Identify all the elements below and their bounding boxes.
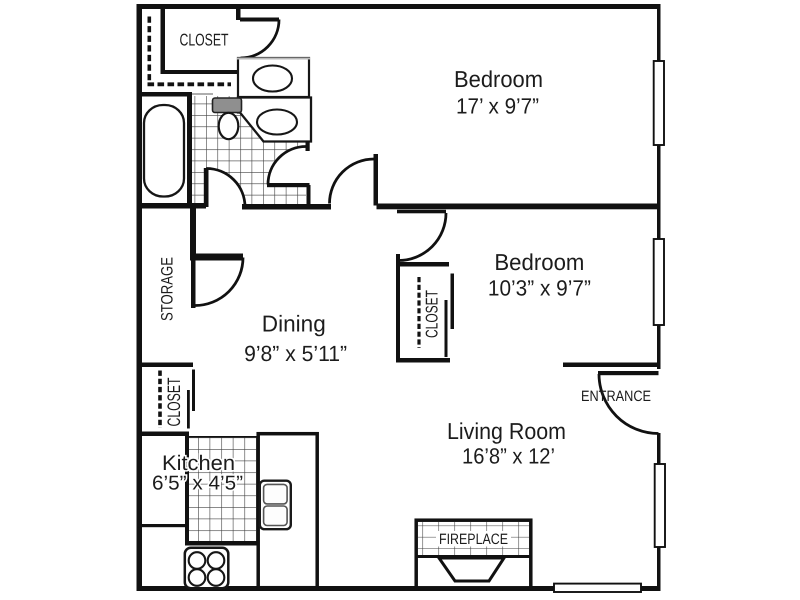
svg-text:CLOSET: CLOSET bbox=[164, 378, 184, 427]
svg-text:6’5” x 4’5”: 6’5” x 4’5” bbox=[152, 473, 243, 495]
svg-text:Dining: Dining bbox=[262, 311, 326, 337]
svg-text:10’3” x 9’7”: 10’3” x 9’7” bbox=[488, 276, 591, 301]
svg-text:Bedroom: Bedroom bbox=[454, 66, 543, 92]
svg-text:16’8” x 12’: 16’8” x 12’ bbox=[462, 444, 555, 469]
svg-text:FIREPLACE: FIREPLACE bbox=[439, 531, 508, 548]
svg-text:CLOSET: CLOSET bbox=[180, 31, 229, 50]
svg-text:STORAGE: STORAGE bbox=[159, 257, 177, 321]
svg-text:Living Room: Living Room bbox=[447, 418, 566, 444]
svg-text:ENTRANCE: ENTRANCE bbox=[581, 388, 651, 405]
svg-text:9’8” x 5’11”: 9’8” x 5’11” bbox=[244, 341, 347, 366]
svg-text:CLOSET: CLOSET bbox=[423, 290, 442, 338]
svg-text:17’ x 9’7”: 17’ x 9’7” bbox=[456, 94, 539, 119]
svg-text:Bedroom: Bedroom bbox=[494, 249, 584, 275]
